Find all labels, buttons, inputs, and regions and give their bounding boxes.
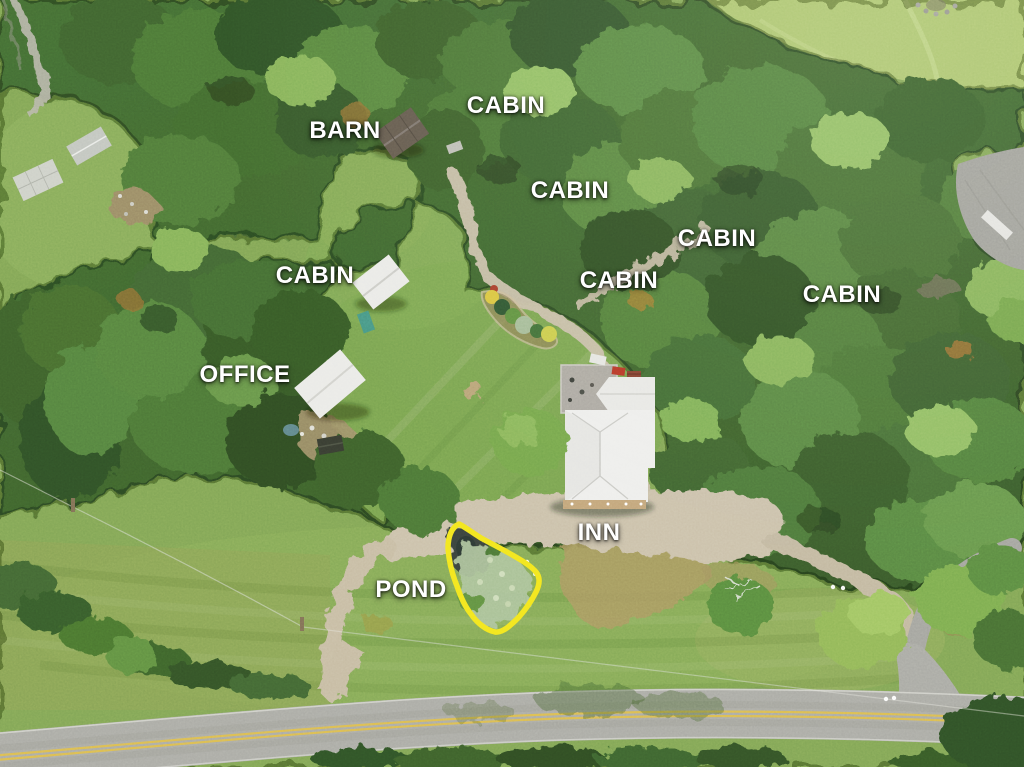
aerial-photo: BARN CABIN CABIN CABIN CABIN CABIN CABIN…: [0, 0, 1024, 767]
grain-overlay: [0, 0, 1024, 767]
